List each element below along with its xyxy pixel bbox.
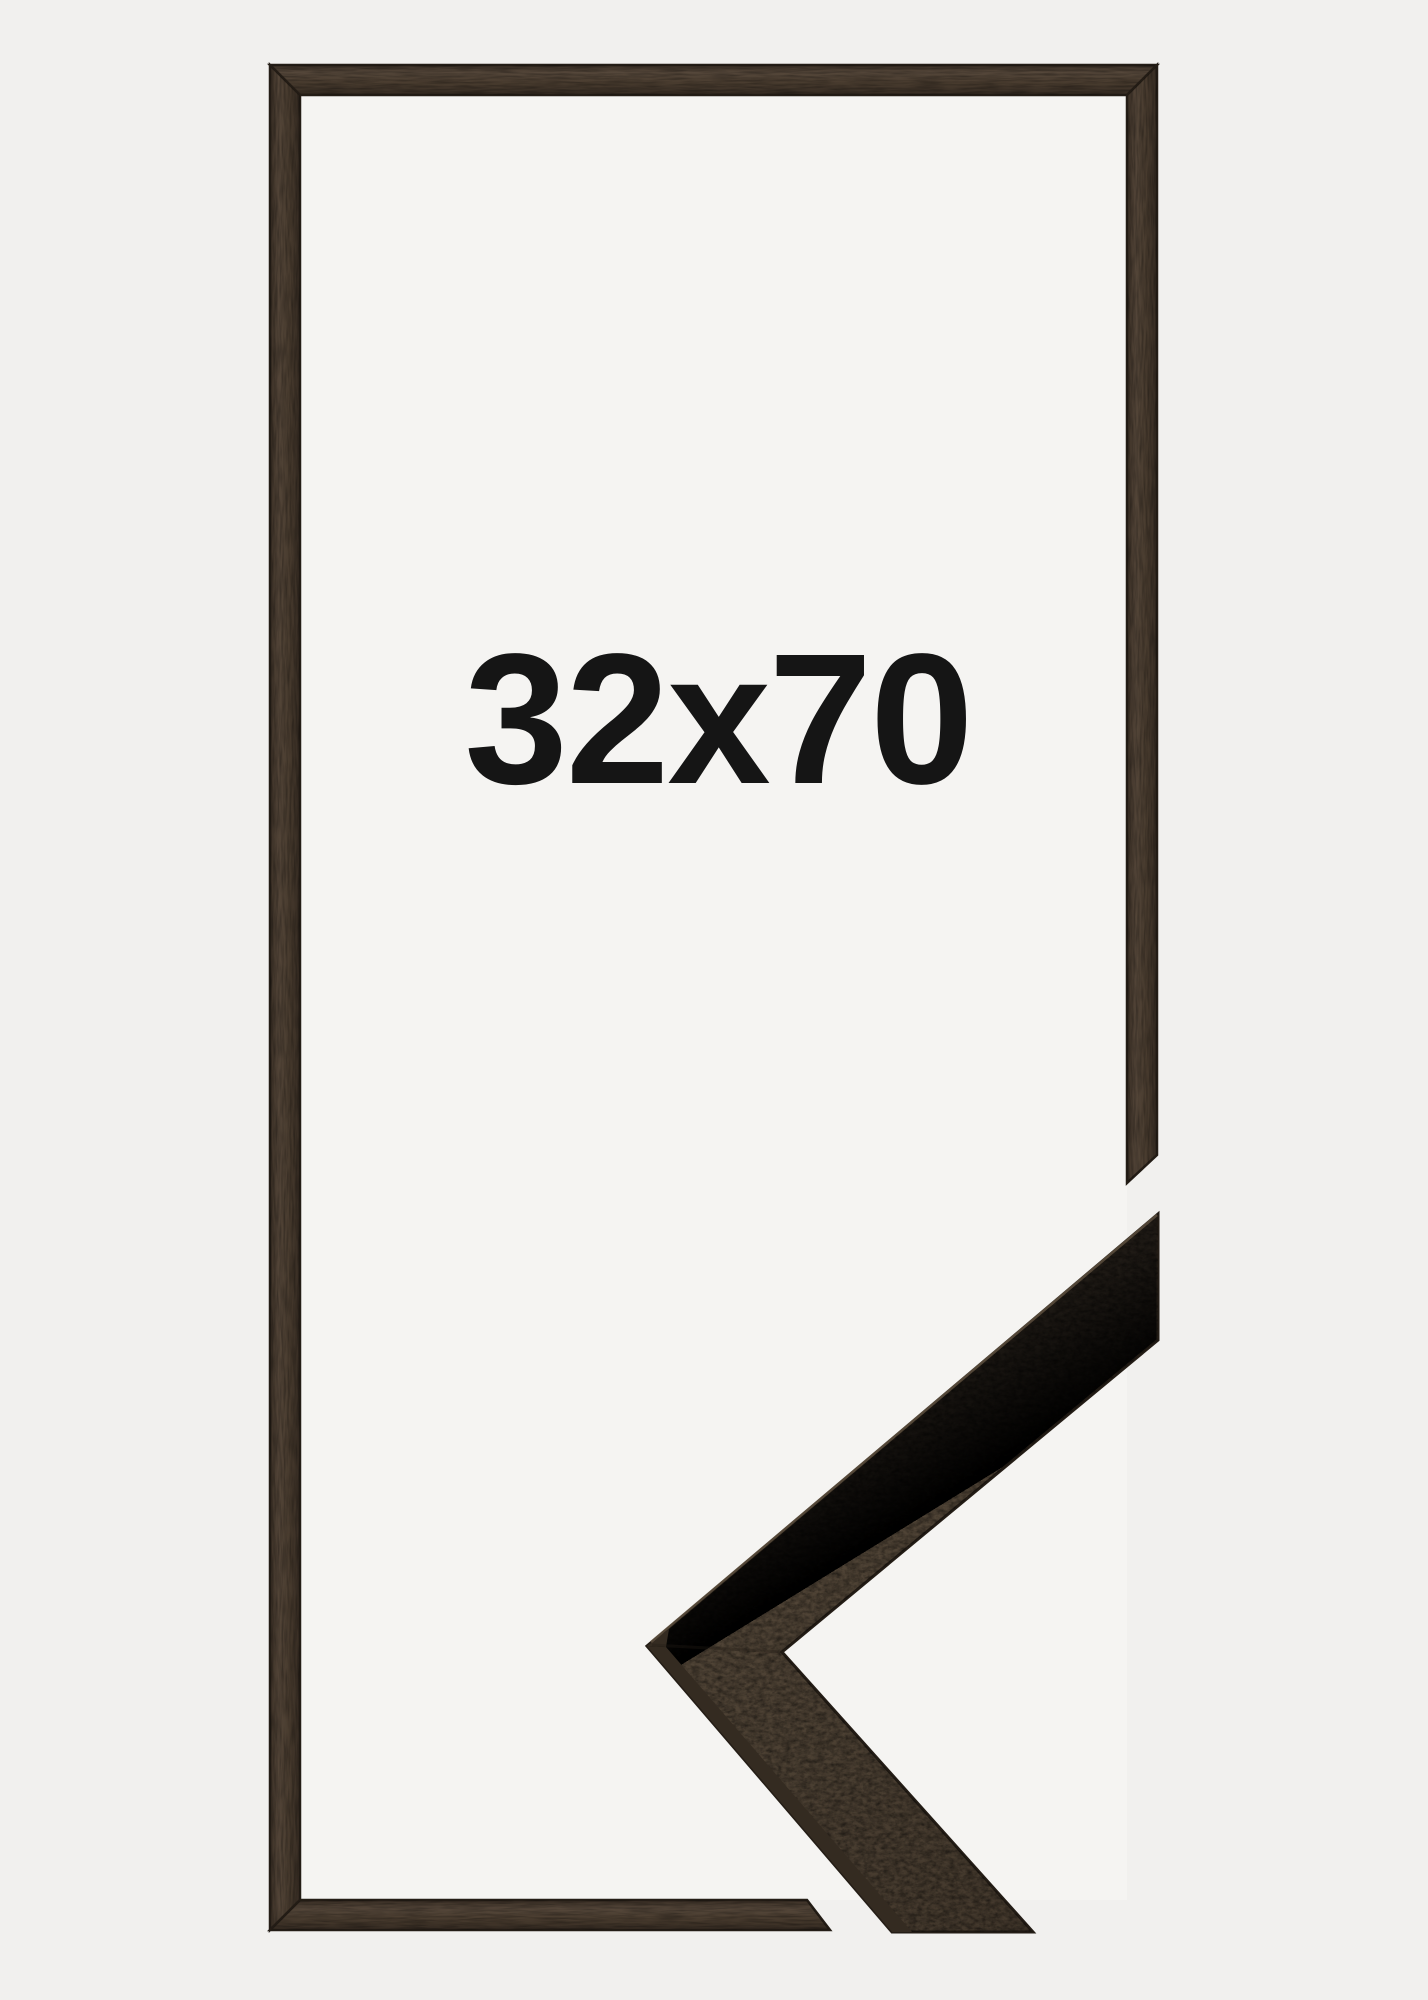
frame-illustration [0,0,1428,2000]
product-image: 32x70 [0,0,1428,2000]
size-label: 32x70 [464,627,971,813]
